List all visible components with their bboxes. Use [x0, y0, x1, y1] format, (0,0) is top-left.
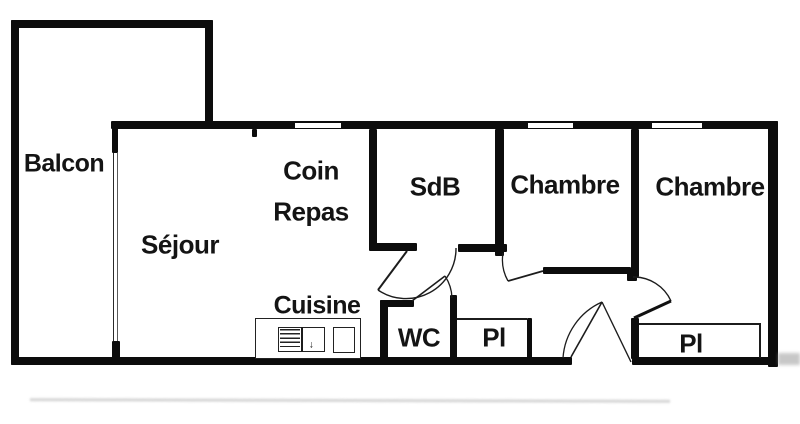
- sdb-label: SdB: [410, 172, 461, 203]
- stove-divider-line: [301, 327, 303, 352]
- sejour-label: Séjour: [141, 230, 219, 261]
- floor-plan: ↓ Balcon Séjour Coin Repas SdB Chambre C…: [0, 0, 800, 424]
- sink-unit: [333, 327, 355, 353]
- wall-sejour-coinrepas-stub: [252, 129, 257, 137]
- wc-label: WC: [398, 323, 440, 354]
- scan-artifact-corner-smudge: [778, 353, 800, 365]
- wall-bottom-right: [632, 357, 778, 365]
- oven-arrow-icon: ↓: [309, 340, 314, 351]
- scan-artifact-bottom-streak: [30, 398, 670, 403]
- wall-balcony-left: [11, 20, 19, 365]
- wall-chambre1-bottom: [543, 267, 631, 274]
- wall-chambre-divider: [631, 129, 639, 277]
- wall-sdb-right: [495, 129, 504, 256]
- wall-hall-placard2: [631, 318, 639, 359]
- placard2-right-line: [759, 323, 761, 358]
- window-stub-bottom: [112, 341, 120, 359]
- entry-door-leaf: [571, 302, 602, 357]
- chambre-2-window-icon: [652, 123, 702, 128]
- stove-burner-lines-icon: [280, 329, 300, 350]
- coin-repas-label-line1: Coin: [283, 156, 339, 187]
- wall-balcony-right: [205, 20, 213, 129]
- coin-repas-label-line2: Repas: [273, 197, 349, 228]
- coin-repas-window-icon: [295, 123, 341, 128]
- wall-balcony-top: [11, 20, 213, 28]
- wall-wc-top: [380, 300, 414, 307]
- chambre2-door-leaf: [634, 301, 671, 318]
- cuisine-label: Cuisine: [274, 292, 361, 321]
- chambre1-door-leaf: [508, 271, 543, 281]
- placard1-top-line: [457, 318, 527, 320]
- window-stub-top: [112, 128, 118, 153]
- balcon-label: Balcon: [24, 150, 104, 179]
- wall-wc-right: [450, 295, 457, 359]
- wc-door-leaf: [412, 276, 445, 301]
- placard2-label: Pl: [679, 329, 703, 360]
- wall-right: [768, 121, 778, 367]
- entry-door-arc: [563, 302, 602, 358]
- sdb-door-leaf: [378, 251, 407, 290]
- chambre2-label: Chambre: [655, 172, 764, 203]
- chambre-1-window-icon: [528, 123, 573, 128]
- entry-door-swing: [602, 302, 631, 362]
- wall-wc-left: [380, 300, 388, 359]
- wall-sdb-left: [369, 129, 377, 250]
- chambre1-door-arc: [502, 253, 508, 281]
- wall-sdb-bottom: [369, 243, 417, 251]
- placard2-top-line: [639, 323, 761, 325]
- chambre2-door-arc: [633, 277, 671, 301]
- sejour-balcony-window-icon: [113, 153, 118, 341]
- placard1-label: Pl: [482, 323, 506, 354]
- sdb-door-arc: [378, 248, 456, 299]
- wall-placard1-right: [527, 318, 532, 359]
- chambre1-label: Chambre: [510, 170, 619, 201]
